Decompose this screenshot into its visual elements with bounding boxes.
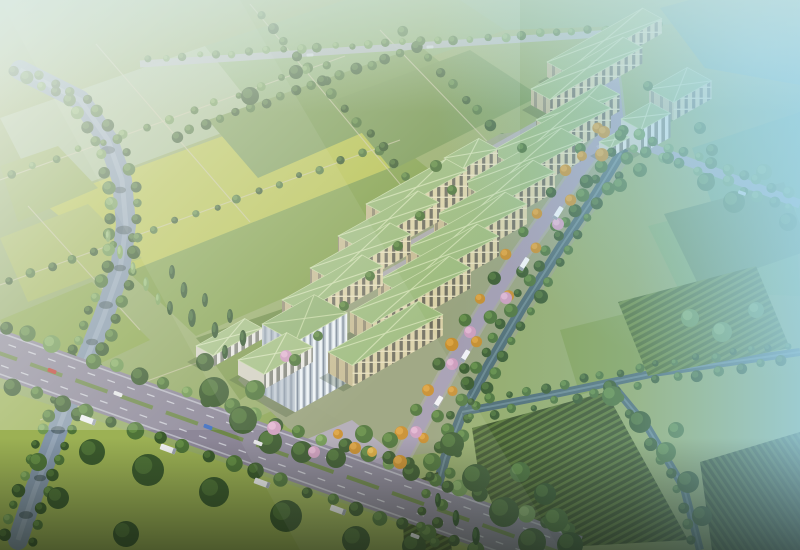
aerial-site-rendering bbox=[0, 0, 800, 550]
mist-top bbox=[0, 0, 800, 150]
aerial-rendering-canvas bbox=[0, 0, 800, 550]
bottom-vignette bbox=[0, 390, 800, 550]
haze-layer bbox=[0, 0, 800, 550]
